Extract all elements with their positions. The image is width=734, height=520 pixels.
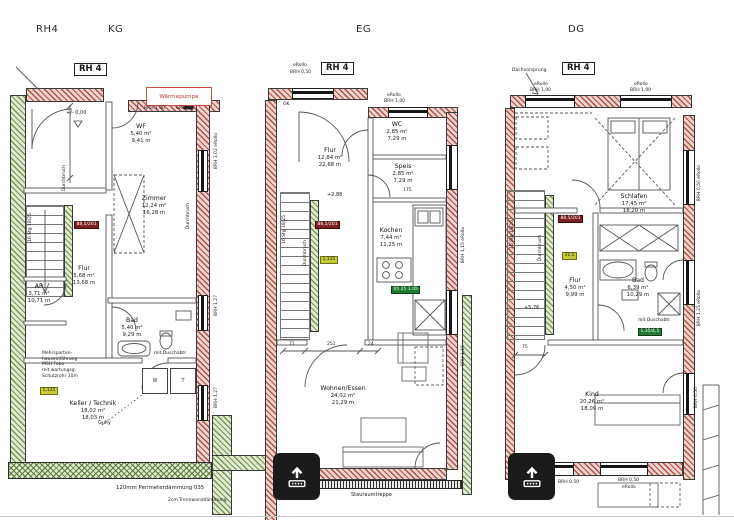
floor-label-dg: DG — [568, 24, 584, 35]
dg-level-marker: +5,76 — [524, 305, 539, 311]
upload-overlay-button-eg[interactable] — [273, 453, 320, 500]
note-line: Schutzrohr 10m — [42, 374, 86, 380]
room-perimeter: 13,68 m — [73, 280, 95, 287]
room-area: 12,24 m² — [142, 203, 167, 210]
eg-bottom-note: Stauraumtreppe — [351, 492, 392, 498]
eg-room-flur: Flur 12,84 m² 22,68 m — [307, 147, 353, 169]
kg-duct-label-1: Durchbruch — [62, 165, 68, 191]
eg-room-speis: Speis 2,85 m² 7,29 m — [383, 163, 423, 185]
eg-room-wc: WC 2,85 m² 7,29 m — [377, 121, 417, 143]
dg-window-bottom-2 — [600, 462, 648, 476]
eg-right-insulation — [462, 295, 472, 495]
kg-right-label-bottom: BRH 1,27 — [214, 387, 220, 408]
upload-overlay-button-dg[interactable] — [508, 453, 555, 500]
dg-window-right-2 — [683, 260, 695, 305]
room-perimeter: 21,29 m — [332, 400, 354, 407]
dg-room-schlafen: Schlafen 17,45 m² 18,20 m — [608, 193, 660, 215]
room-name: Kochen — [380, 227, 403, 235]
dg-window-t2-label-2: BRH 1,00 — [630, 88, 651, 94]
eg-window-right-1 — [446, 145, 458, 190]
room-area: 3,71 m² — [28, 291, 49, 298]
eg-kitchen-fixtures — [377, 205, 446, 335]
dg-shower-note: mit Duschabtr. — [638, 318, 671, 324]
project-label: RH4 — [36, 24, 58, 35]
room-name: Zimmer — [142, 195, 166, 203]
kg-utility-note: Mehrsparten- hauseinführung MSH Febo mit… — [42, 351, 86, 379]
eg-title-box: RH 4 — [321, 62, 354, 75]
kg-heat-pump-label: Wärmepumpe — [159, 94, 198, 100]
dg-duct-label: Durchbruch — [538, 235, 544, 261]
room-name: Flur — [324, 147, 336, 155]
room-perimeter: 10,71 m — [28, 298, 50, 305]
dg-window-b1-label: BRH 0,50 — [558, 480, 579, 486]
room-area: 6,39 m² — [627, 285, 648, 292]
room-name: Flur — [78, 265, 90, 273]
eg-window-wc-label-2: BRH 1,00 — [384, 99, 405, 105]
eg-dim-c: 24 — [368, 342, 374, 348]
eg-room-kochen: Kochen 7,44 m² 11,25 m — [369, 227, 413, 249]
plan-dg: RH 4 Dachvorsprung eRollo BRH 1,00 eRoll… — [500, 55, 734, 517]
upload-icon — [519, 464, 545, 490]
dg-title-box: RH 4 — [562, 62, 595, 75]
kg-right-label-mid: BRH 1,27 — [214, 295, 220, 316]
eg-stair-wall — [310, 200, 319, 332]
kg-window-right-3 — [198, 385, 208, 421]
kg-heat-pump-box: Wärmepumpe — [146, 87, 212, 106]
room-perimeter: 7,29 m — [388, 136, 407, 143]
eg-window-tag: 1,135 — [320, 256, 338, 264]
kg-top-window-label-2: eRollo — [176, 106, 190, 112]
dg-room-flur: Flur 4,50 m² 9,99 m — [555, 277, 595, 299]
dg-roof-note: Dachvorsprung — [512, 68, 546, 74]
eg-duct-label: Durchbruch — [303, 240, 309, 266]
dg-green-tag: 1,35/4,5 — [638, 328, 662, 336]
room-perimeter: 10,29 m — [627, 292, 649, 299]
floorplan-sheet: RH4 KG EG DG RH 4 Wärmepumpe BRH 1,00 eR… — [0, 0, 734, 520]
kg-perimeter-note: 120mm Perimeterdämmung 035 — [116, 485, 204, 492]
eg-right-label-top: BRH 1,15 eRollo — [461, 227, 467, 263]
dg-window-t1-label-2: BRH 1,00 — [530, 88, 551, 94]
room-name: Bad — [126, 317, 138, 325]
eg-window-right-2 — [446, 290, 458, 335]
dg-stair-wall — [545, 195, 554, 335]
eg-door-tag: 88,5/201 — [315, 221, 340, 229]
room-perimeter: 9,29 m — [123, 332, 142, 339]
dg-door-tag: 88,5/201 — [558, 215, 583, 223]
eg-right-label-bottom: BRH 1,15 — [461, 345, 467, 366]
upload-icon — [284, 464, 310, 490]
dg-window-top-2 — [620, 95, 672, 108]
washer-label: W — [153, 378, 158, 384]
room-name: WF — [136, 123, 146, 131]
kg-window-right-2 — [198, 295, 208, 331]
kg-stair-text: 16 Stg 18/25 — [28, 213, 34, 242]
kg-room-wf: WF 5,40 m² 9,41 m — [118, 123, 164, 145]
dg-window-top-1 — [525, 95, 575, 108]
kg-window-tag: 1,135 — [40, 387, 58, 395]
room-perimeter: 22,68 m — [319, 162, 341, 169]
room-perimeter: 18,09 m — [581, 406, 603, 413]
room-area: 5,40 m² — [121, 325, 142, 332]
eg-window-tl-label-2: BRH 0,50 — [290, 70, 311, 76]
kg-window-right-1 — [198, 150, 208, 192]
dg-room-kind: Kind 20,26 m² 18,09 m — [570, 391, 614, 413]
kg-dryer: T — [170, 368, 196, 394]
eg-kitchen-tag: 05 25 1 05 — [391, 286, 420, 294]
kg-room-keller: Keller / Technik 18,02 m² 18,03 m — [48, 400, 138, 422]
kg-shower-note: mit Duschabtr. — [154, 351, 187, 357]
room-area: 5,68 m² — [73, 273, 94, 280]
room-area: 4,50 m² — [564, 285, 585, 292]
dg-window-tag: 31,5 — [562, 252, 577, 260]
room-name: Flur — [569, 277, 581, 285]
room-area: 2,85 m² — [392, 171, 413, 178]
kg-room-ar: AR 3,71 m² 10,71 m — [22, 283, 56, 305]
eg-ok-label: OK — [283, 102, 290, 108]
kg-wall-bottom — [8, 462, 212, 479]
room-name: Keller / Technik — [70, 400, 116, 408]
room-area: 17,45 m² — [622, 201, 647, 208]
kg-gully-label: Gully — [98, 420, 111, 426]
room-perimeter: 11,25 m — [380, 242, 402, 249]
eg-window-top-left — [292, 88, 334, 99]
kg-room-flur: Flur 5,68 m² 13,68 m — [64, 265, 104, 287]
kg-exterior-stair-foot — [212, 455, 270, 471]
kg-level-marker: +/- 0,00 — [66, 110, 86, 116]
dg-bed — [595, 118, 675, 205]
kg-room-zimmer: Zimmer 12,24 m² 16,28 m — [128, 195, 180, 217]
room-perimeter: 7,29 m — [394, 178, 413, 185]
dg-railing — [703, 385, 719, 515]
dg-window-b2-label-1: BRH 0,50 — [618, 478, 639, 484]
dg-right-label-mid: BRH 1,25 eRollo — [697, 290, 703, 326]
eg-room-wohnen: Wohnen/Essen 24,02 m² 21,29 m — [313, 385, 373, 407]
eg-terrace-edge — [300, 480, 462, 489]
room-perimeter: 9,41 m — [132, 138, 151, 145]
dg-stair-text: 16 Stg 18/25 — [510, 220, 516, 249]
room-area: 18,02 m² — [81, 408, 106, 415]
eg-level-marker: +2,88 — [327, 192, 342, 198]
kg-door-tag: 88,5/201 — [74, 221, 99, 229]
room-name: Wohnen/Essen — [320, 385, 365, 393]
dg-window-t1-label-1: eRollo — [534, 82, 548, 88]
room-area: 7,44 m² — [380, 235, 401, 242]
kg-party-wall — [10, 95, 26, 465]
room-name: Schlafen — [621, 193, 648, 201]
eg-window-wc — [388, 107, 428, 118]
dg-wardrobe — [600, 225, 678, 251]
room-name: Kind — [585, 391, 599, 399]
room-area: 20,26 m² — [580, 399, 605, 406]
eg-dim-b: 251 — [327, 342, 336, 348]
room-perimeter: 18,20 m — [623, 208, 645, 215]
dg-right-label-top: BRH 0,50 eRollo — [697, 165, 703, 201]
floor-label-eg: EG — [356, 24, 371, 35]
eg-window-tl-label-1: eRollo — [293, 63, 307, 69]
dg-window-t2-label-1: eRollo — [634, 82, 648, 88]
room-area: 24,02 m² — [331, 393, 356, 400]
room-name: AR — [35, 283, 44, 291]
room-name: Bad — [632, 277, 644, 285]
plan-kg: RH 4 Wärmepumpe BRH 1,00 eRollo 16 Stg 1… — [8, 55, 264, 517]
dg-window-b2-label-2: eRollo — [622, 485, 636, 491]
eg-window-wc-label-1: eRollo — [387, 93, 401, 99]
eg-dim-speis: 175 — [403, 188, 412, 194]
kg-title-box: RH 4 — [74, 63, 107, 76]
room-name: WC — [392, 121, 402, 129]
kg-wall-top-left — [26, 88, 104, 102]
kg-washer: W — [142, 368, 168, 394]
dg-dim-a: 75 — [522, 345, 528, 351]
sheet-edge-line — [0, 516, 734, 517]
room-area: 5,40 m² — [130, 131, 151, 138]
dryer-label: T — [181, 378, 184, 384]
kg-duct-label-2: Durchbruch — [186, 203, 192, 229]
plan-eg: RH 4 eRollo BRH 0,50 eRollo BRH 1,00 16 … — [265, 55, 475, 517]
room-area: 2,85 m² — [386, 129, 407, 136]
dg-window-right-1 — [683, 150, 695, 205]
kg-room-bad: Bad 5,40 m² 9,29 m — [112, 317, 152, 339]
dg-room-bad: Bad 6,39 m² 10,29 m — [618, 277, 658, 299]
eg-stair-text: 16 Stg 18/25 — [282, 215, 288, 244]
room-name: Speis — [395, 163, 412, 171]
eg-dim-a: 71 — [289, 342, 295, 348]
dg-stairs — [507, 190, 545, 340]
kg-right-label-top: BRH 1,02 eRollo — [214, 133, 220, 169]
dg-right-label-bottom: BRH 0,50 — [694, 387, 700, 408]
floor-label-kg: KG — [108, 24, 123, 35]
kg-partition-note: 2cm Trennwanddämmung — [168, 498, 227, 504]
room-perimeter: 16,28 m — [143, 210, 165, 217]
kg-top-window-label-1: BRH 1,00 — [144, 106, 165, 112]
room-perimeter: 9,99 m — [566, 292, 585, 299]
room-area: 12,84 m² — [318, 155, 343, 162]
